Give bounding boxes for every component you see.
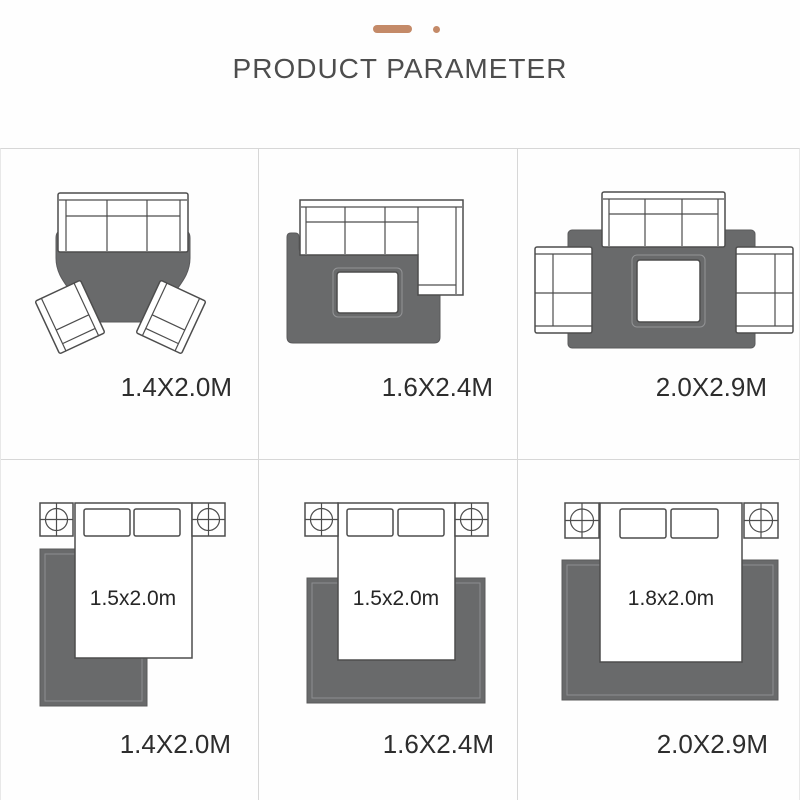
bed-size-label: 1.5x2.0m	[90, 587, 176, 610]
nightstand-left	[305, 503, 338, 536]
cell-bedroom-1: 1.5x2.0m 1.4X2.0M	[40, 503, 231, 759]
bed-size-label: 1.8x2.0m	[628, 587, 714, 610]
bed-size-label: 1.5x2.0m	[353, 587, 439, 610]
nightstand-left	[565, 503, 599, 538]
nightstand-left	[40, 503, 73, 536]
product-parameter-page: PRODUCT PARAMETER	[0, 0, 800, 800]
sofa	[602, 192, 725, 247]
armchair-left	[535, 247, 592, 333]
nightstand-right	[192, 503, 225, 536]
cell-living-3: 2.0X2.9M	[535, 192, 793, 402]
floor-plan-grid: 1.4X2.0M 1.6X2.4M	[0, 0, 800, 800]
rug-size-label: 2.0X2.9M	[656, 372, 767, 402]
coffee-table	[337, 272, 398, 313]
cell-living-2: 1.6X2.4M	[287, 200, 493, 402]
rug-size-label: 2.0X2.9M	[657, 729, 768, 759]
pillow	[671, 509, 718, 538]
nightstand-right	[744, 503, 778, 538]
armchair-right	[736, 247, 793, 333]
pillow	[134, 509, 180, 536]
cell-living-1: 1.4X2.0M	[35, 193, 232, 402]
sofa	[58, 193, 188, 252]
rug-size-label: 1.6X2.4M	[383, 729, 494, 759]
rug-size-label: 1.4X2.0M	[121, 372, 232, 402]
pillow	[347, 509, 393, 536]
rug-size-label: 1.6X2.4M	[382, 372, 493, 402]
pillow	[620, 509, 666, 538]
coffee-table	[637, 260, 700, 322]
cell-bedroom-2: 1.5x2.0m 1.6X2.4M	[305, 503, 494, 759]
cell-bedroom-3: 1.8x2.0m 2.0X2.9M	[562, 503, 778, 759]
rug-size-label: 1.4X2.0M	[120, 729, 231, 759]
pillow	[84, 509, 130, 536]
pillow	[398, 509, 444, 536]
nightstand-right	[455, 503, 488, 536]
